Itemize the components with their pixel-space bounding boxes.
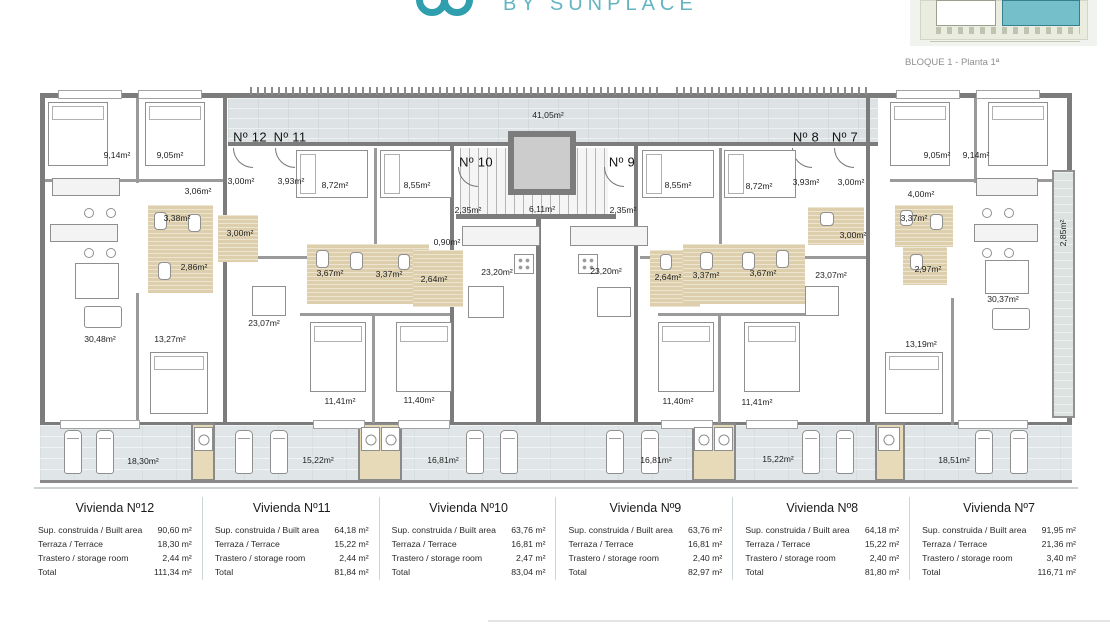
summary-row: Sup. construida / Built area63,76 m²: [392, 524, 546, 538]
summary-row-label: Sup. construida / Built area: [215, 524, 319, 538]
room-area-label: 2,97m²: [915, 264, 942, 274]
room-area-label: 30,48m²: [84, 334, 116, 344]
summary-row-value: 81,80 m²: [865, 566, 899, 580]
unit-summary-rows: Sup. construida / Built area64,18 m²Terr…: [215, 524, 369, 580]
bottom-rule: [488, 620, 1110, 622]
room-area-label: 3,67m²: [317, 268, 344, 278]
unit-summary-rows: Sup. construida / Built area90,60 m²Terr…: [38, 524, 192, 580]
summary-row-label: Trastero / storage room: [922, 552, 1012, 566]
unit-number-label: Nº 12: [233, 130, 267, 145]
summary-row-value: 15,22 m²: [334, 538, 368, 552]
unit-summary-rows: Sup. construida / Built area91,95 m²Terr…: [922, 524, 1076, 580]
room-area-label: 9,14m²: [104, 150, 131, 160]
summary-row-value: 16,81 m²: [511, 538, 545, 552]
room-area-label: 0,90m²: [434, 237, 461, 247]
units-summary-tables: Vivienda Nº12 Sup. construida / Built ar…: [26, 497, 1086, 580]
room-area-label: 18,30m²: [127, 456, 159, 466]
summary-row: Terraza / Terrace16,81 m²: [392, 538, 546, 552]
summary-row: Total111,34 m²: [38, 566, 192, 580]
room-area-label: 3,00m²: [227, 228, 254, 238]
summary-row-value: 82,97 m²: [688, 566, 722, 580]
unit-summary-title: Vivienda Nº8: [745, 501, 899, 515]
room-area-label: 9,05m²: [924, 150, 951, 160]
room-area-label: 8,72m²: [746, 181, 773, 191]
summary-row: Terraza / Terrace15,22 m²: [215, 538, 369, 552]
room-area-label: 3,00m²: [840, 230, 867, 240]
summary-row-label: Sup. construida / Built area: [38, 524, 142, 538]
room-area-label: 3,93m²: [278, 176, 305, 186]
room-area-label: 41,05m²: [532, 110, 564, 120]
room-area-label: 13,27m²: [154, 334, 186, 344]
room-area-label: 16,81m²: [427, 455, 459, 465]
unit-number-label: Nº 11: [274, 130, 307, 145]
summary-row-label: Trastero / storage room: [745, 552, 835, 566]
summary-row: Terraza / Terrace15,22 m²: [745, 538, 899, 552]
room-area-label: 11,40m²: [663, 396, 694, 406]
summary-row-value: 2,44 m²: [162, 552, 191, 566]
summary-row-label: Total: [392, 566, 410, 580]
summary-row: Trastero / storage room2,44 m²: [215, 552, 369, 566]
summary-row-value: 16,81 m²: [688, 538, 722, 552]
summary-row-label: Total: [745, 566, 763, 580]
room-area-label: 4,00m²: [908, 189, 935, 199]
summary-row-value: 116,71 m²: [1037, 566, 1075, 580]
summary-row-value: 64,18 m²: [865, 524, 899, 538]
room-area-label: 2,64m²: [421, 274, 448, 284]
summary-row-value: 2,40 m²: [693, 552, 722, 566]
summary-row-label: Terraza / Terrace: [922, 538, 987, 552]
summary-row-value: 91,95 m²: [1042, 524, 1076, 538]
summary-row: Sup. construida / Built area64,18 m²: [215, 524, 369, 538]
summary-row: Total81,80 m²: [745, 566, 899, 580]
summary-row: Terraza / Terrace16,81 m²: [568, 538, 722, 552]
summary-row-value: 18,30 m²: [158, 538, 192, 552]
room-area-label: 3,06m²: [185, 186, 212, 196]
summary-row-label: Sup. construida / Built area: [745, 524, 849, 538]
room-area-label: 16,81m²: [640, 455, 672, 465]
summary-row: Trastero / storage room2,40 m²: [568, 552, 722, 566]
room-area-label: 3,93m²: [793, 177, 820, 187]
summary-row-label: Sup. construida / Built area: [568, 524, 672, 538]
summary-row-value: 21,36 m²: [1042, 538, 1076, 552]
room-area-label: 6,11m²: [529, 204, 555, 214]
room-area-label: 9,05m²: [157, 150, 184, 160]
summary-row-label: Terraza / Terrace: [568, 538, 633, 552]
unit-number-label: Nº 7: [832, 130, 858, 145]
summary-row-value: 2,40 m²: [870, 552, 899, 566]
room-area-label: 11,41m²: [325, 396, 356, 406]
summary-row: Sup. construida / Built area63,76 m²: [568, 524, 722, 538]
summary-row-label: Sup. construida / Built area: [392, 524, 496, 538]
room-area-label: 13,19m²: [905, 339, 937, 349]
unit-summary-rows: Sup. construida / Built area63,76 m²Terr…: [568, 524, 722, 580]
unit-summary-title: Vivienda Nº7: [922, 501, 1076, 515]
summary-row-label: Trastero / storage room: [215, 552, 305, 566]
room-area-label: 2,35m²: [610, 205, 637, 215]
room-area-label: 11,41m²: [742, 397, 773, 407]
summary-row: Trastero / storage room3,40 m²: [922, 552, 1076, 566]
room-area-label: 3,38m²: [164, 213, 191, 223]
summary-row-label: Trastero / storage room: [38, 552, 128, 566]
room-area-label: 9,14m²: [963, 150, 990, 160]
summary-row: Total82,97 m²: [568, 566, 722, 580]
unit-summary-card: Vivienda Nº8 Sup. construida / Built are…: [732, 497, 909, 580]
room-area-label: 15,22m²: [762, 454, 794, 464]
summary-row: Total83,04 m²: [392, 566, 546, 580]
unit-summary-title: Vivienda Nº9: [568, 501, 722, 515]
summary-row-value: 15,22 m²: [865, 538, 899, 552]
summary-row-value: 2,47 m²: [516, 552, 545, 566]
summary-row-value: 3,40 m²: [1047, 552, 1076, 566]
room-area-label: 3,00m²: [228, 176, 255, 186]
summary-row-label: Terraza / Terrace: [215, 538, 280, 552]
summary-row-label: Total: [215, 566, 233, 580]
room-area-label: 3,37m²: [376, 269, 403, 279]
unit-summary-title: Vivienda Nº12: [38, 501, 192, 515]
summary-row: Total116,71 m²: [922, 566, 1076, 580]
room-area-label: 2,64m²: [655, 272, 682, 282]
unit-summary-title: Vivienda Nº11: [215, 501, 369, 515]
room-area-label: 2,85m²: [1058, 220, 1068, 247]
room-area-label: 30,37m²: [987, 294, 1019, 304]
room-area-label: 3,67m²: [750, 268, 777, 278]
room-area-label: 8,55m²: [404, 180, 431, 190]
summary-row-value: 90,60 m²: [158, 524, 192, 538]
summary-row-value: 63,76 m²: [688, 524, 722, 538]
room-area-label: 23,07m²: [815, 270, 847, 280]
room-area-label: 11,40m²: [404, 395, 435, 405]
unit-number-label: Nº 8: [793, 130, 819, 145]
summary-row-label: Terraza / Terrace: [745, 538, 810, 552]
summary-row: Terraza / Terrace21,36 m²: [922, 538, 1076, 552]
summary-row-label: Terraza / Terrace: [392, 538, 457, 552]
room-area-label: 15,22m²: [302, 455, 334, 465]
summary-row-value: 111,34 m²: [154, 566, 192, 580]
summary-row: Sup. construida / Built area64,18 m²: [745, 524, 899, 538]
summary-row-label: Total: [922, 566, 940, 580]
room-area-label: 8,55m²: [665, 180, 692, 190]
summary-row-value: 63,76 m²: [511, 524, 545, 538]
room-area-label: 3,37m²: [693, 270, 720, 280]
unit-summary-rows: Sup. construida / Built area64,18 m²Terr…: [745, 524, 899, 580]
summary-row-label: Terraza / Terrace: [38, 538, 103, 552]
unit-summary-card: Vivienda Nº9 Sup. construida / Built are…: [555, 497, 732, 580]
summary-row-label: Total: [38, 566, 56, 580]
room-area-label: 3,00m²: [838, 177, 865, 187]
summary-row: Sup. construida / Built area91,95 m²: [922, 524, 1076, 538]
unit-summary-rows: Sup. construida / Built area63,76 m²Terr…: [392, 524, 546, 580]
summary-row-value: 83,04 m²: [511, 566, 545, 580]
room-area-label: 18,51m²: [938, 455, 970, 465]
unit-summary-title: Vivienda Nº10: [392, 501, 546, 515]
room-area-label: 23,20m²: [481, 267, 513, 277]
summary-row-label: Sup. construida / Built area: [922, 524, 1026, 538]
summary-row-value: 64,18 m²: [334, 524, 368, 538]
summary-row-label: Trastero / storage room: [392, 552, 482, 566]
summary-row: Trastero / storage room2,47 m²: [392, 552, 546, 566]
summary-row: Terraza / Terrace18,30 m²: [38, 538, 192, 552]
unit-number-label: Nº 9: [609, 155, 635, 170]
unit-summary-card: Vivienda Nº7 Sup. construida / Built are…: [909, 497, 1086, 580]
summary-row: Trastero / storage room2,44 m²: [38, 552, 192, 566]
room-area-label: 8,72m²: [322, 180, 349, 190]
unit-summary-card: Vivienda Nº10 Sup. construida / Built ar…: [379, 497, 556, 580]
summary-row: Trastero / storage room2,40 m²: [745, 552, 899, 566]
unit-summary-card: Vivienda Nº11 Sup. construida / Built ar…: [202, 497, 379, 580]
summary-row-label: Trastero / storage room: [568, 552, 658, 566]
room-area-label: 23,20m²: [590, 266, 622, 276]
summary-row: Sup. construida / Built area90,60 m²: [38, 524, 192, 538]
room-area-label: 2,86m²: [181, 262, 208, 272]
summary-row-label: Total: [568, 566, 586, 580]
unit-summary-card: Vivienda Nº12 Sup. construida / Built ar…: [26, 497, 202, 580]
summary-row: Total81,84 m²: [215, 566, 369, 580]
summary-row-value: 81,84 m²: [334, 566, 368, 580]
room-area-label: 23,07m²: [248, 318, 280, 328]
summary-row-value: 2,44 m²: [339, 552, 368, 566]
room-area-label: 3,37m²: [901, 213, 928, 223]
unit-number-label: Nº 10: [459, 155, 493, 170]
room-area-label: 2,35m²: [455, 205, 482, 215]
